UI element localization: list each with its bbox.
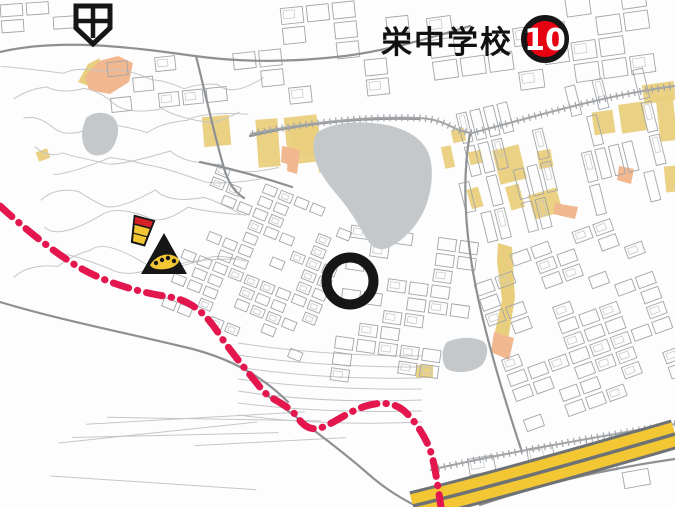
map-number-badge: 10 (524, 18, 566, 60)
school-label: 栄中学校 (381, 25, 513, 61)
map-layers (0, 0, 675, 507)
hazard-map-canvas[interactable]: 栄中学校 10 (0, 0, 675, 507)
hazard-map-svg: 栄中学校 10 (0, 0, 675, 507)
badge-number: 10 (524, 23, 566, 58)
